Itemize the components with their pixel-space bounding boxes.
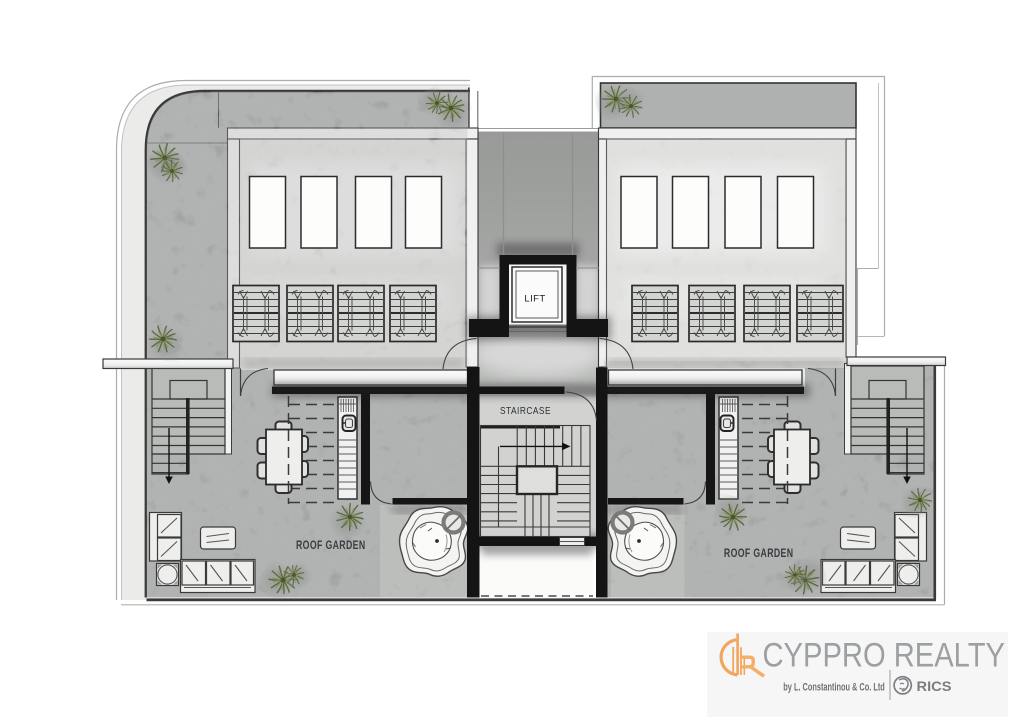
- svg-text:LIFT: LIFT: [524, 294, 545, 305]
- svg-text:ROOF GARDEN: ROOF GARDEN: [724, 546, 794, 560]
- svg-text:CYPPRO REALTY: CYPPRO REALTY: [763, 636, 1006, 674]
- svg-text:by L. Constantinou & Co. Ltd: by L. Constantinou & Co. Ltd: [783, 681, 885, 693]
- svg-text:STAIRCASE: STAIRCASE: [500, 406, 551, 417]
- svg-text:ROOF GARDEN: ROOF GARDEN: [296, 538, 366, 552]
- svg-text:RICS: RICS: [917, 679, 952, 694]
